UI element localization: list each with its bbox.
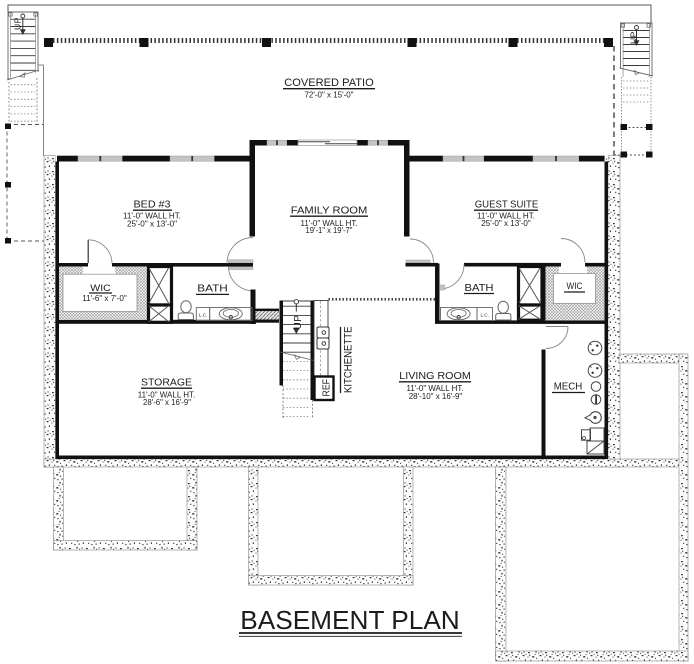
svg-text:WIC: WIC	[567, 281, 583, 292]
svg-text:BASEMENT PLAN: BASEMENT PLAN	[240, 605, 460, 635]
svg-text:KITCHENETTE: KITCHENETTE	[343, 327, 355, 394]
svg-text:28'-6" x 16'-9": 28'-6" x 16'-9"	[143, 398, 191, 407]
svg-text:LIVING ROOM: LIVING ROOM	[399, 371, 471, 382]
svg-text:UP: UP	[628, 31, 638, 44]
svg-text:GUEST SUITE: GUEST SUITE	[475, 200, 539, 211]
svg-text:25'-0" x 13'-0": 25'-0" x 13'-0"	[127, 219, 177, 228]
svg-text:L.C.: L.C.	[199, 313, 207, 318]
svg-text:COVERED PATIO: COVERED PATIO	[284, 77, 374, 89]
svg-text:MECH: MECH	[554, 382, 583, 393]
svg-text:BED #3: BED #3	[134, 200, 171, 211]
svg-text:UP: UP	[293, 315, 304, 330]
svg-text:L.C.: L.C.	[480, 313, 488, 318]
svg-text:BATH: BATH	[465, 283, 494, 294]
svg-text:11'-6" x 7'-0": 11'-6" x 7'-0"	[82, 294, 127, 303]
svg-text:REF: REF	[321, 379, 333, 397]
svg-text:28'-10" x 16'-9": 28'-10" x 16'-9"	[409, 392, 463, 401]
svg-text:STORAGE: STORAGE	[141, 378, 192, 389]
svg-text:19'-1" x 19'-7": 19'-1" x 19'-7"	[306, 226, 353, 235]
svg-text:72'-0" x 15'-0": 72'-0" x 15'-0"	[305, 90, 354, 99]
svg-text:WIC: WIC	[90, 283, 111, 294]
svg-text:FAMILY ROOM: FAMILY ROOM	[291, 206, 368, 217]
svg-text:BATH: BATH	[197, 284, 228, 295]
svg-text:25'-0" x 13'-0": 25'-0" x 13'-0"	[481, 219, 531, 228]
svg-text:UP: UP	[13, 17, 23, 30]
